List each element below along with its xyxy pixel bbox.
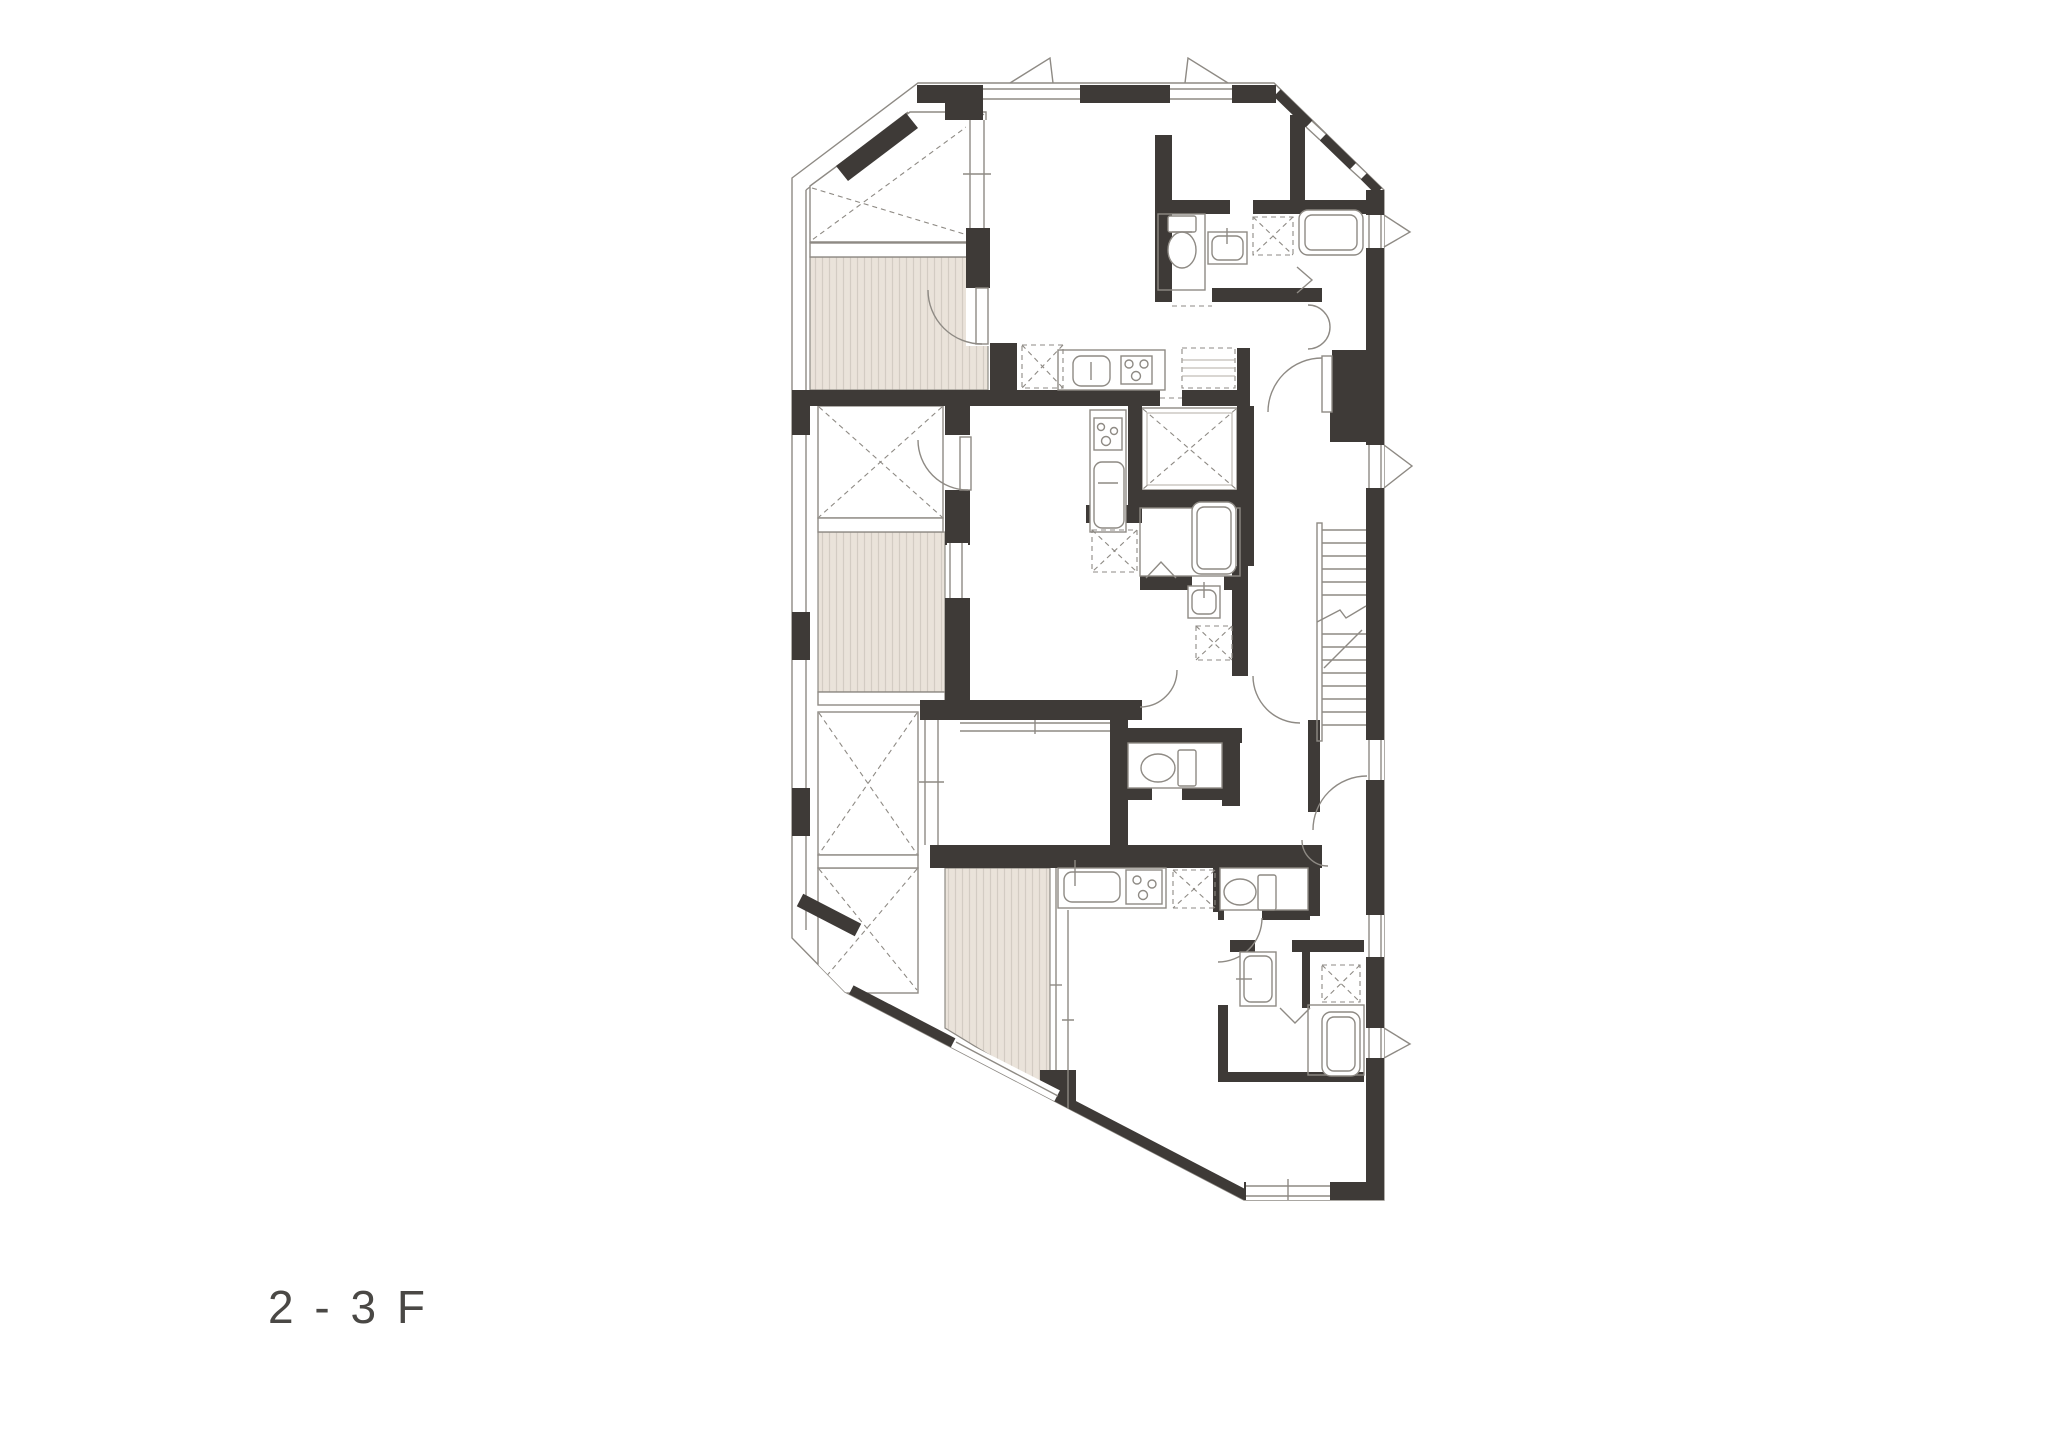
toilet-icon (1224, 875, 1276, 910)
elevator-shaft-x (1142, 408, 1237, 490)
void-x-shaft-2 (818, 406, 943, 518)
wc-middle-unit (1128, 743, 1222, 788)
bathtub-icon (1299, 210, 1363, 255)
door-leaf (976, 288, 988, 344)
vanity-sink-icon (1208, 228, 1247, 264)
wc-bottom-unit (1220, 868, 1308, 910)
bathroom-top-unit (1158, 210, 1363, 290)
balcony-deck-2 (818, 532, 945, 692)
balcony-deck-1 (810, 257, 988, 390)
bathtub-icon (1192, 502, 1236, 574)
kitchen-counter-top-unit (1022, 345, 1235, 390)
kitchen-middle-unit (1090, 410, 1126, 532)
folding-door-chevron (1280, 1008, 1310, 1023)
floor-plan-page: 2 - 3 F (0, 0, 2048, 1448)
void-x-shaft-3 (818, 712, 918, 855)
floor-plan-drawing (0, 0, 2048, 1448)
stair-break-line (1317, 606, 1366, 622)
kitchen-sink-icon (1094, 462, 1124, 528)
bathroom-bottom-unit (1236, 952, 1364, 1076)
balcony-deck-3 (945, 868, 1050, 1092)
kitchen-sink-icon (1064, 872, 1120, 902)
toilet-icon (1141, 750, 1196, 786)
vanity-sink-icon (1236, 952, 1276, 1006)
bedroom-closet (960, 720, 1110, 734)
staircase (1317, 523, 1366, 741)
floor-label: 2 - 3 F (268, 1280, 429, 1334)
vanity-sink-icon (1188, 582, 1220, 618)
void-x-shaft-4 (818, 868, 918, 993)
service-box-x (1196, 626, 1232, 660)
bathtub-icon (1322, 1012, 1360, 1076)
toilet-icon (1168, 216, 1196, 268)
